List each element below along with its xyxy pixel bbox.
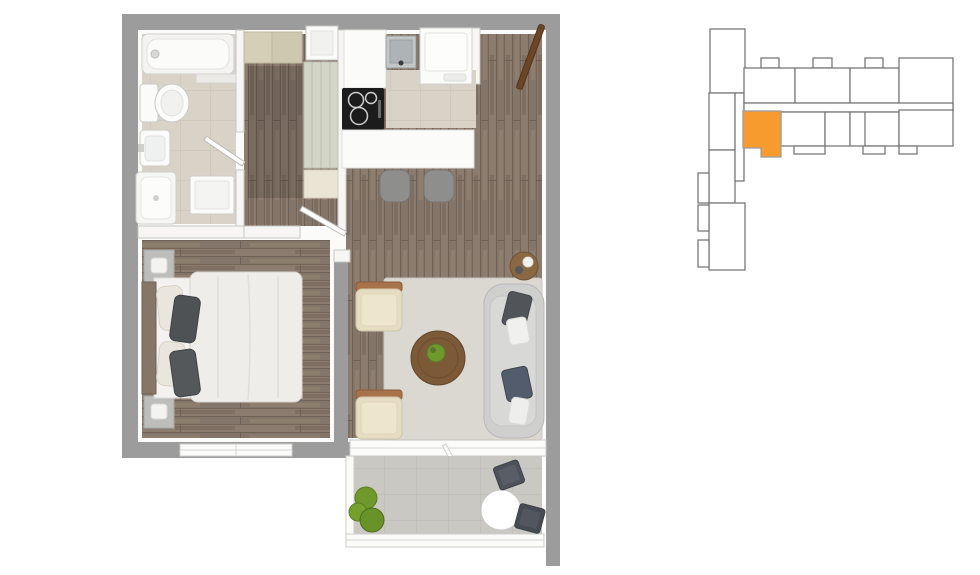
wall-bedroom-living xyxy=(334,260,348,442)
key-plan-unit[interactable] xyxy=(899,110,953,146)
sofa-pillow-white-1 xyxy=(506,316,530,345)
bathtub-drain xyxy=(151,50,159,58)
fridge-handle xyxy=(444,74,466,81)
kitchen-peninsula xyxy=(342,130,474,168)
side-table-decor-white xyxy=(523,257,533,267)
sofa-pillow-white-2 xyxy=(508,397,530,426)
key-plan-balcony xyxy=(813,58,832,68)
nightstand-2 xyxy=(144,396,174,428)
balcony xyxy=(346,456,546,547)
wall-top xyxy=(122,14,560,30)
side-table xyxy=(510,252,538,280)
wall-bathroom-right-upper xyxy=(236,30,244,132)
key-plan-highlighted-unit[interactable] xyxy=(743,111,781,157)
hallway-floor-shade xyxy=(248,66,302,198)
hall-shaft-inner xyxy=(311,31,333,55)
kitchen-sink-basin xyxy=(390,40,412,63)
page xyxy=(0,0,980,575)
bed-headboard xyxy=(142,282,156,394)
nightstand-1-lamp xyxy=(151,258,167,273)
key-plan-balcony xyxy=(761,58,779,68)
key-plan-unit[interactable] xyxy=(709,93,735,150)
key-plan-unit[interactable] xyxy=(710,29,745,93)
hall-bench xyxy=(304,170,338,198)
bathroom-sink-basin xyxy=(145,136,165,161)
hall-cabinet-right xyxy=(272,32,302,63)
key-plan-balcony xyxy=(794,146,825,154)
key-plan-core xyxy=(825,112,850,146)
wall-bathroom-right-lower xyxy=(236,170,244,228)
side-table-decor-dark xyxy=(515,266,523,274)
key-plan-unit[interactable] xyxy=(899,58,953,110)
balcony-railing-left xyxy=(346,456,354,544)
toilet-bowl-inner xyxy=(161,90,183,116)
key-plan-unit[interactable] xyxy=(709,203,745,270)
nightstand-2-lamp xyxy=(151,404,167,419)
wall-hall-bottom xyxy=(244,226,300,238)
coffee-table-plant xyxy=(427,344,445,362)
armchair-2 xyxy=(356,390,402,439)
key-plan-unit[interactable] xyxy=(781,112,825,146)
key-plan xyxy=(698,29,953,270)
apartment-floor-plan xyxy=(122,14,560,566)
key-plan-balcony xyxy=(698,173,709,203)
armchair-2-cushion xyxy=(361,402,397,434)
bar-stool-2 xyxy=(424,170,454,202)
wall-cap-bedroom-living xyxy=(334,250,350,262)
cooktop-controls xyxy=(378,100,381,118)
vanity-top xyxy=(195,181,229,209)
kitchen-faucet xyxy=(399,61,404,66)
bath-shelf xyxy=(196,74,236,83)
armchair-1 xyxy=(356,282,402,331)
key-plan-balcony xyxy=(899,146,917,154)
coffee-table-plant-leaf xyxy=(430,347,436,353)
hall-cabinet-left xyxy=(244,32,272,63)
nightstand-1 xyxy=(144,250,174,282)
key-plan-balcony xyxy=(698,205,709,231)
key-plan-balcony xyxy=(698,240,709,267)
bar-stool-1 xyxy=(380,170,410,202)
key-plan-unit[interactable] xyxy=(850,68,899,103)
bed xyxy=(142,272,302,402)
living-room xyxy=(356,252,544,440)
armchair-1-cushion xyxy=(361,294,397,326)
key-plan-unit[interactable] xyxy=(709,150,735,203)
fridge-door xyxy=(425,33,467,71)
key-plan-balcony xyxy=(863,146,885,154)
wall-right xyxy=(546,14,560,566)
key-plan-balcony xyxy=(865,58,883,68)
wall-left xyxy=(122,14,138,458)
bedroom xyxy=(142,250,302,428)
key-plan-unit[interactable] xyxy=(850,112,899,146)
key-plan-unit[interactable] xyxy=(795,68,850,103)
balcony-plant-3 xyxy=(360,508,384,532)
bathroom-sink-faucet xyxy=(138,144,144,152)
wall-bathroom-bottom xyxy=(138,226,244,238)
kitchen-counter-left xyxy=(344,30,386,88)
scene-svg xyxy=(0,0,980,575)
bed-duvet xyxy=(190,272,302,402)
sofa xyxy=(484,284,544,438)
key-plan-unit[interactable] xyxy=(744,68,795,103)
shower-drain xyxy=(153,195,159,201)
